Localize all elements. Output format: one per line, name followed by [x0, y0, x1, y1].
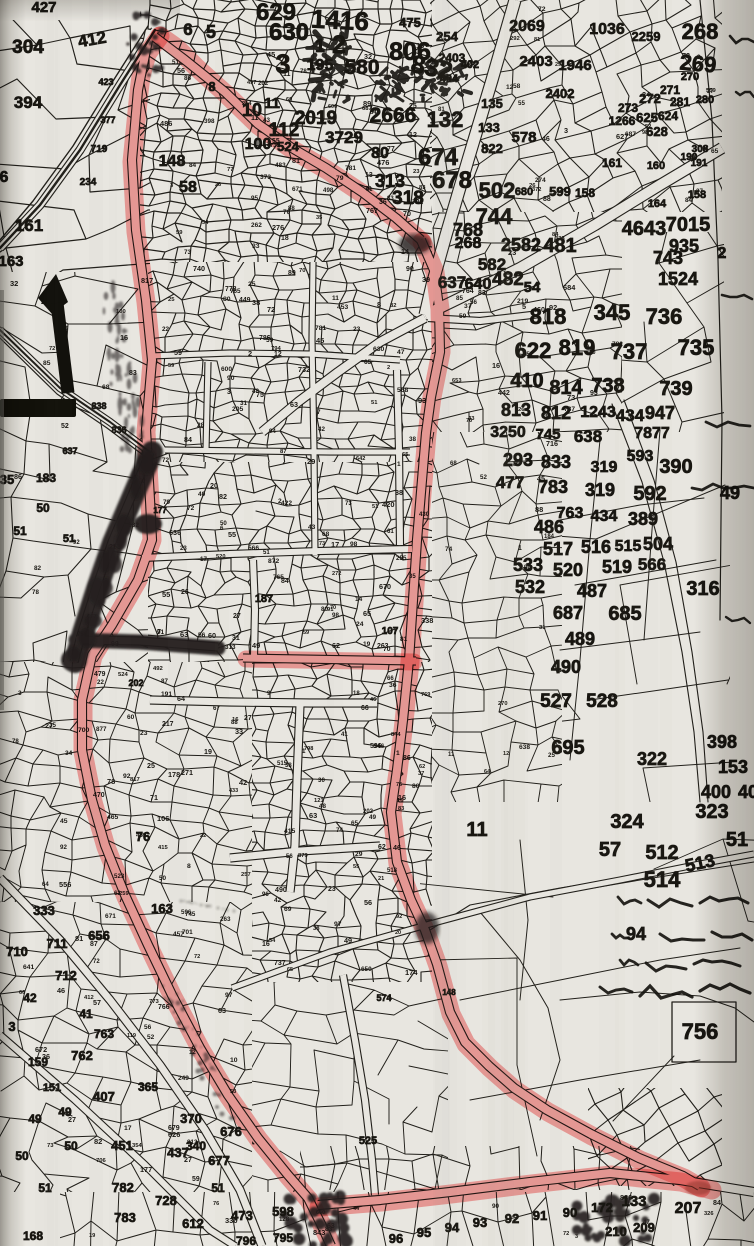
- svg-text:61: 61: [387, 528, 394, 535]
- svg-text:51: 51: [372, 504, 378, 510]
- svg-text:51: 51: [371, 400, 378, 406]
- svg-text:65: 65: [351, 820, 359, 827]
- svg-text:63: 63: [290, 400, 298, 409]
- svg-text:340: 340: [186, 1139, 206, 1153]
- svg-text:765: 765: [230, 288, 241, 295]
- svg-text:96: 96: [262, 891, 269, 898]
- svg-text:81: 81: [75, 934, 83, 943]
- svg-text:22: 22: [200, 833, 206, 839]
- svg-text:10: 10: [230, 1057, 238, 1064]
- svg-text:18: 18: [353, 691, 360, 697]
- svg-text:786: 786: [259, 335, 271, 342]
- svg-text:684: 684: [563, 283, 576, 292]
- svg-text:33: 33: [235, 727, 243, 736]
- svg-text:2: 2: [387, 365, 390, 371]
- svg-text:70: 70: [466, 418, 472, 424]
- svg-text:63: 63: [309, 811, 317, 820]
- svg-text:65: 65: [363, 609, 371, 618]
- svg-text:52: 52: [147, 1034, 155, 1041]
- svg-text:492: 492: [153, 666, 164, 672]
- svg-text:415: 415: [158, 845, 168, 851]
- svg-text:27: 27: [233, 613, 241, 620]
- svg-text:17: 17: [200, 556, 208, 563]
- svg-text:732: 732: [298, 365, 310, 374]
- svg-text:56: 56: [286, 854, 293, 860]
- svg-text:55: 55: [228, 530, 236, 539]
- svg-text:23: 23: [140, 730, 148, 737]
- svg-text:69: 69: [284, 906, 292, 913]
- svg-text:475: 475: [399, 15, 421, 30]
- svg-text:84: 84: [281, 578, 289, 585]
- svg-text:68: 68: [102, 384, 110, 391]
- svg-text:16: 16: [232, 717, 239, 723]
- svg-text:29: 29: [307, 457, 315, 466]
- svg-text:80: 80: [371, 145, 389, 162]
- svg-text:43: 43: [308, 524, 316, 531]
- svg-text:62: 62: [378, 844, 386, 851]
- svg-text:817: 817: [130, 777, 141, 783]
- svg-text:8: 8: [377, 300, 381, 309]
- svg-text:88: 88: [535, 505, 543, 514]
- svg-text:177: 177: [140, 1165, 152, 1174]
- svg-text:81: 81: [534, 37, 540, 43]
- svg-text:630: 630: [373, 346, 385, 353]
- svg-text:8: 8: [208, 79, 215, 94]
- svg-text:670: 670: [379, 582, 391, 591]
- svg-text:630: 630: [269, 19, 309, 46]
- svg-text:580: 580: [344, 56, 379, 79]
- svg-text:354: 354: [132, 1143, 143, 1149]
- svg-text:574: 574: [376, 993, 391, 1003]
- svg-text:489: 489: [565, 629, 595, 649]
- svg-text:819: 819: [559, 335, 596, 360]
- svg-text:13: 13: [365, 172, 373, 179]
- svg-text:769: 769: [421, 692, 430, 698]
- svg-text:69: 69: [286, 97, 292, 103]
- svg-text:490: 490: [275, 886, 287, 894]
- svg-text:80: 80: [412, 783, 420, 790]
- svg-text:346: 346: [373, 743, 385, 750]
- svg-text:51: 51: [263, 550, 270, 556]
- svg-text:91: 91: [533, 1208, 547, 1223]
- svg-text:174: 174: [405, 968, 418, 977]
- svg-text:45: 45: [267, 50, 275, 59]
- svg-text:338: 338: [421, 616, 433, 625]
- svg-text:60: 60: [208, 631, 216, 640]
- svg-text:21: 21: [378, 876, 384, 882]
- svg-text:3: 3: [275, 49, 290, 79]
- svg-text:372: 372: [532, 187, 541, 193]
- svg-text:36: 36: [389, 682, 397, 689]
- svg-text:49: 49: [252, 641, 260, 650]
- svg-text:65: 65: [364, 359, 372, 366]
- svg-text:87: 87: [161, 678, 168, 685]
- svg-text:14: 14: [355, 596, 363, 603]
- svg-text:47: 47: [397, 349, 405, 356]
- svg-text:1946: 1946: [558, 57, 591, 74]
- svg-text:92: 92: [396, 914, 402, 920]
- svg-text:19: 19: [363, 641, 371, 648]
- svg-text:62: 62: [419, 764, 425, 770]
- svg-text:794: 794: [271, 346, 282, 352]
- svg-text:38: 38: [313, 926, 320, 932]
- svg-text:59: 59: [192, 1176, 200, 1183]
- svg-text:49: 49: [369, 814, 377, 821]
- svg-text:18: 18: [281, 235, 289, 242]
- svg-text:7: 7: [157, 627, 161, 636]
- svg-text:40: 40: [198, 491, 206, 498]
- svg-text:66: 66: [361, 705, 369, 712]
- svg-text:89: 89: [288, 270, 296, 277]
- svg-text:76: 76: [136, 829, 150, 844]
- svg-text:24: 24: [356, 621, 364, 628]
- svg-text:158: 158: [575, 186, 595, 200]
- svg-text:23: 23: [353, 326, 361, 333]
- svg-text:70: 70: [383, 646, 391, 653]
- svg-text:31: 31: [232, 635, 240, 642]
- svg-text:2: 2: [278, 498, 282, 505]
- svg-text:29: 29: [355, 851, 363, 858]
- svg-text:55: 55: [353, 864, 359, 870]
- svg-text:422: 422: [281, 500, 292, 507]
- svg-text:28: 28: [197, 422, 205, 429]
- svg-text:107: 107: [382, 626, 399, 637]
- svg-text:90: 90: [406, 266, 414, 273]
- svg-text:72: 72: [538, 6, 546, 13]
- svg-text:8: 8: [187, 863, 191, 870]
- svg-text:54: 54: [269, 938, 276, 944]
- svg-text:25: 25: [147, 762, 155, 770]
- svg-text:798: 798: [304, 746, 313, 752]
- svg-text:740: 740: [193, 264, 205, 273]
- svg-text:20: 20: [395, 930, 401, 936]
- svg-text:5: 5: [206, 22, 216, 42]
- svg-text:9: 9: [267, 690, 271, 697]
- svg-text:420: 420: [382, 500, 395, 509]
- svg-text:90: 90: [563, 1205, 577, 1220]
- svg-text:671: 671: [292, 186, 303, 193]
- svg-text:415: 415: [284, 828, 296, 835]
- svg-text:72: 72: [563, 1231, 569, 1237]
- svg-text:781: 781: [345, 165, 356, 172]
- svg-text:365: 365: [138, 1080, 158, 1094]
- svg-text:274: 274: [535, 177, 546, 184]
- svg-text:3: 3: [564, 126, 568, 135]
- svg-text:598: 598: [272, 1204, 294, 1219]
- svg-text:46: 46: [542, 136, 550, 143]
- svg-text:16: 16: [262, 941, 270, 948]
- svg-text:42: 42: [274, 897, 282, 904]
- svg-text:98: 98: [350, 541, 358, 548]
- svg-text:318: 318: [392, 188, 424, 209]
- svg-text:638: 638: [574, 427, 602, 446]
- svg-text:33: 33: [252, 243, 260, 250]
- svg-text:12: 12: [409, 131, 417, 139]
- svg-text:483: 483: [275, 162, 286, 169]
- svg-text:2666: 2666: [370, 104, 417, 127]
- svg-text:38: 38: [285, 763, 292, 769]
- svg-text:398: 398: [204, 118, 215, 125]
- svg-text:795: 795: [273, 1231, 293, 1245]
- svg-text:72: 72: [194, 954, 200, 960]
- svg-text:65: 65: [402, 452, 409, 458]
- svg-text:205: 205: [232, 406, 244, 413]
- svg-text:872: 872: [268, 558, 279, 565]
- svg-text:84: 84: [189, 162, 197, 169]
- svg-text:56: 56: [198, 632, 206, 639]
- svg-text:106: 106: [157, 814, 169, 823]
- svg-text:88: 88: [288, 205, 295, 212]
- svg-text:31: 31: [539, 625, 546, 631]
- svg-text:525: 525: [359, 1135, 377, 1147]
- svg-text:82: 82: [390, 303, 396, 309]
- svg-text:87: 87: [280, 449, 287, 455]
- svg-text:737: 737: [274, 960, 286, 967]
- svg-text:1: 1: [397, 461, 401, 468]
- svg-text:524: 524: [277, 139, 299, 154]
- svg-text:71: 71: [150, 793, 158, 802]
- svg-text:56: 56: [144, 1024, 152, 1031]
- svg-text:46: 46: [370, 697, 376, 703]
- svg-text:72: 72: [187, 505, 195, 512]
- svg-text:177: 177: [153, 506, 167, 515]
- svg-text:73: 73: [345, 500, 352, 507]
- svg-text:37: 37: [418, 771, 424, 777]
- svg-text:38: 38: [252, 298, 260, 307]
- svg-text:11: 11: [264, 95, 280, 112]
- svg-text:879: 879: [298, 853, 309, 859]
- svg-text:54: 54: [202, 220, 209, 226]
- svg-text:202: 202: [258, 80, 269, 87]
- svg-text:255: 255: [396, 555, 407, 562]
- svg-text:50: 50: [159, 875, 167, 882]
- svg-text:276: 276: [272, 223, 284, 232]
- svg-text:642: 642: [356, 456, 365, 462]
- svg-text:65: 65: [287, 967, 293, 973]
- svg-text:38: 38: [409, 436, 417, 443]
- svg-text:70: 70: [299, 268, 306, 274]
- svg-text:56: 56: [364, 898, 372, 907]
- svg-text:94: 94: [269, 428, 276, 435]
- svg-text:19: 19: [204, 748, 212, 756]
- svg-text:96: 96: [389, 1231, 403, 1246]
- svg-text:49: 49: [344, 936, 352, 945]
- svg-text:75: 75: [256, 391, 264, 399]
- svg-text:95: 95: [417, 1225, 431, 1240]
- svg-text:433: 433: [229, 788, 238, 794]
- svg-text:202: 202: [363, 809, 374, 815]
- svg-text:38: 38: [395, 488, 403, 497]
- svg-text:650: 650: [361, 966, 372, 973]
- svg-text:59: 59: [303, 630, 309, 636]
- svg-text:187: 187: [255, 593, 273, 605]
- svg-text:72: 72: [267, 305, 275, 314]
- svg-text:373: 373: [260, 174, 271, 181]
- svg-text:12: 12: [274, 351, 282, 358]
- svg-text:568: 568: [397, 387, 409, 394]
- svg-text:281: 281: [670, 95, 690, 109]
